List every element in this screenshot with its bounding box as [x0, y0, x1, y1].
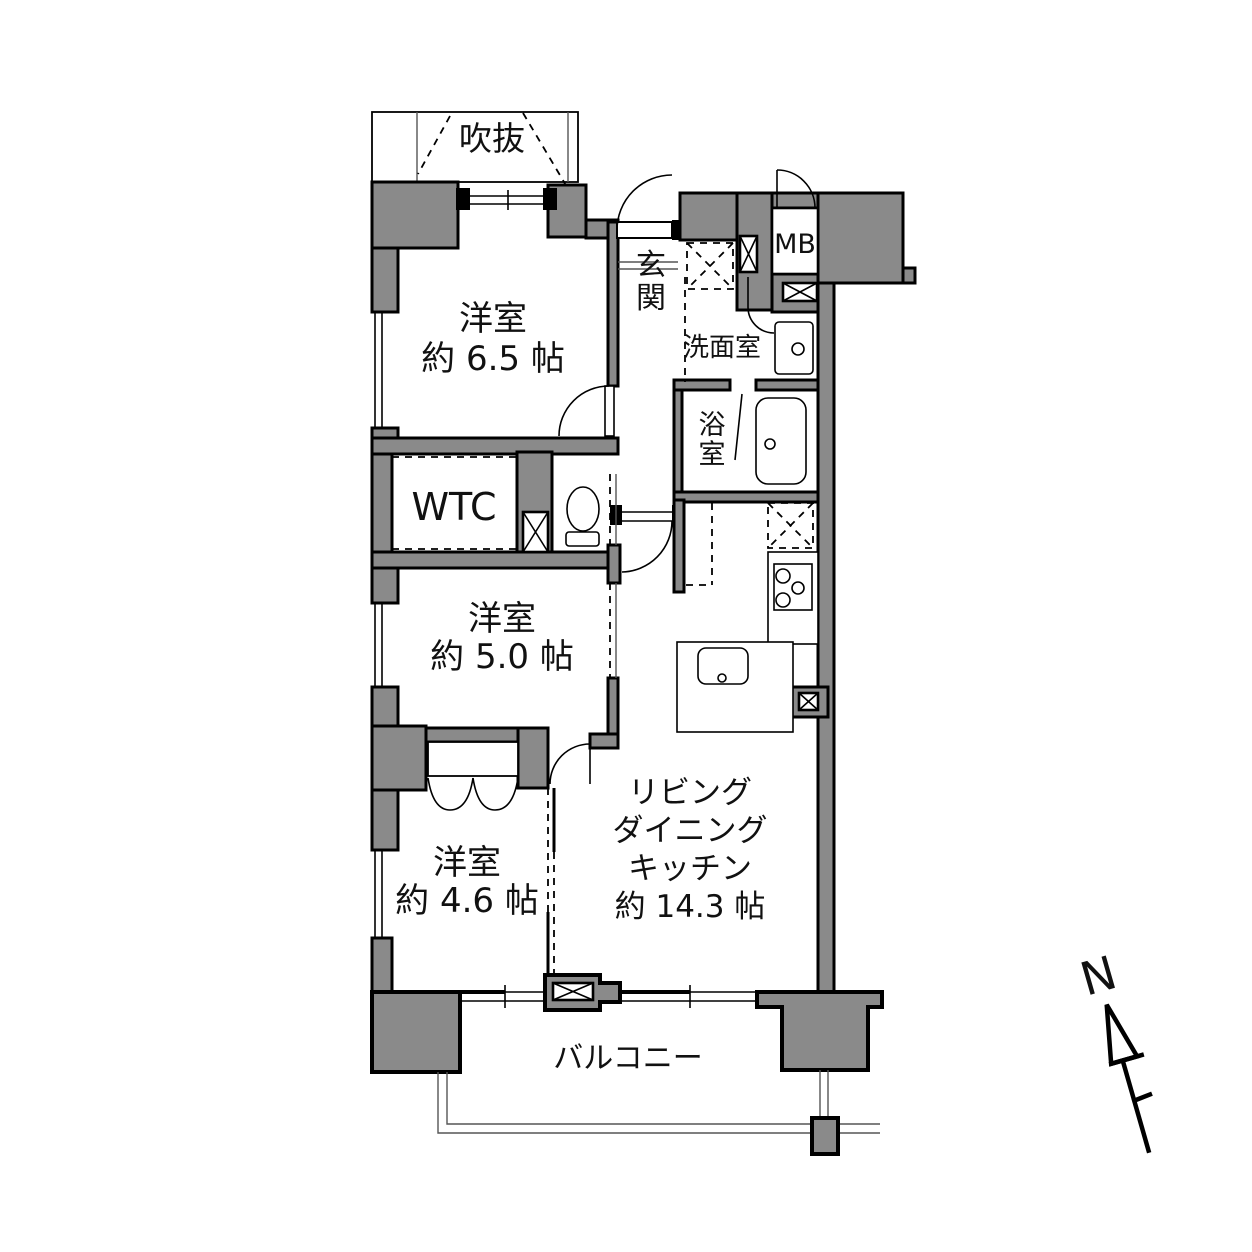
- toilet-area: [566, 474, 616, 546]
- ldk-door-icon: [622, 512, 672, 572]
- ldk-label-dining: ダイニング: [613, 813, 768, 849]
- closet-bifold-icon: [428, 742, 518, 810]
- shaft-icon: [740, 236, 757, 272]
- vanity-sink-icon: [775, 322, 813, 374]
- north-label: N: [1074, 945, 1122, 1006]
- wtc-label: WTC: [411, 485, 496, 529]
- washroom-label: 洗面室: [683, 333, 761, 363]
- bedroom-46-door-icon: [550, 744, 590, 784]
- shaft-icon: [799, 693, 818, 710]
- pillar: [757, 992, 882, 1070]
- stove-icon: [774, 564, 812, 610]
- balcony-label: バルコニー: [553, 1041, 702, 1076]
- toilet-icon: [566, 487, 599, 546]
- bedroom-46-size: 約 4.6 帖: [395, 881, 539, 921]
- bathtub-icon: [756, 398, 806, 484]
- floor-plan-drawing: N 吹抜 洋室 約 6.5 帖 玄関 MB 洗面室 浴室 WTC 洋室 約 5.…: [0, 0, 1252, 1252]
- refrigerator-space-icon: [768, 503, 813, 548]
- washer-space-icon: [687, 243, 733, 289]
- ldk-size: 約 14.3 帖: [615, 889, 766, 925]
- kitchen-sink-icon: [698, 648, 748, 684]
- entrance-label: 玄関: [636, 248, 666, 316]
- drain-box: [812, 1118, 838, 1154]
- bedroom-50-size: 約 5.0 帖: [430, 637, 574, 677]
- pillar: [372, 992, 460, 1072]
- north-arrow-icon: N: [1074, 944, 1170, 1158]
- bathroom-area: [735, 394, 806, 484]
- bathroom-label: 浴室: [699, 410, 726, 471]
- balcony-mullion: [545, 975, 620, 1010]
- shaft-icon: [523, 512, 548, 552]
- floor-plan-page: N 吹抜 洋室 約 6.5 帖 玄関 MB 洗面室 浴室 WTC 洋室 約 5.…: [0, 0, 1252, 1252]
- shaft-icon: [783, 283, 817, 301]
- bedroom-50-label: 洋室: [468, 599, 536, 639]
- ldk-label-kitchen: キッチン: [628, 851, 752, 887]
- bedroom-46-label: 洋室: [433, 843, 501, 883]
- ldk-label-living: リビング: [628, 775, 752, 811]
- bath-door-icon: [735, 394, 742, 460]
- meter-box-label: MB: [774, 229, 816, 260]
- void-space-label: 吹抜: [459, 119, 525, 158]
- bedroom-65-size: 約 6.5 帖: [421, 339, 565, 379]
- entrance-door-leaf: [617, 222, 672, 238]
- bedroom-65-door-icon: [559, 386, 614, 436]
- bedroom-65-label: 洋室: [459, 299, 527, 339]
